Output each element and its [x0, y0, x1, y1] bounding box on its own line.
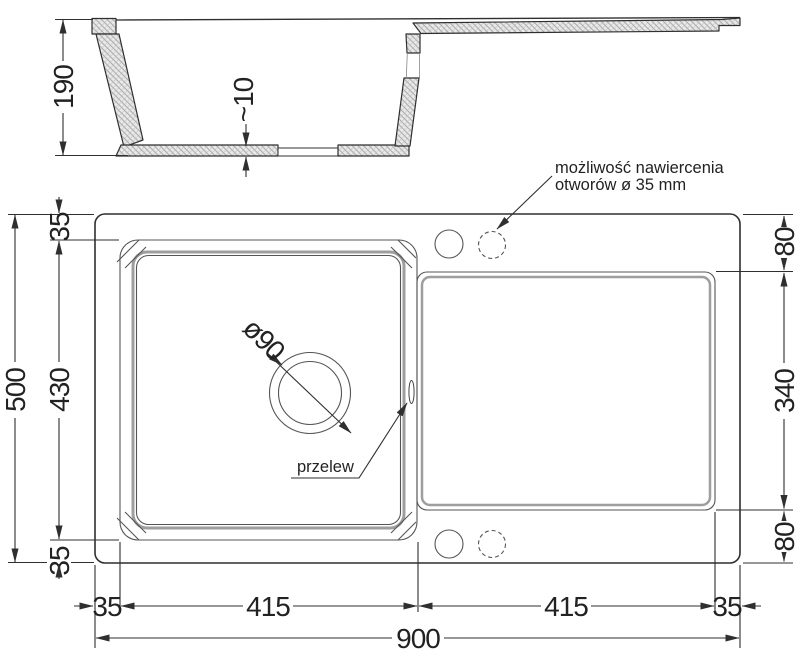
dim-drainer-offset-top-label: 80 [769, 227, 800, 257]
dim-right-margin-label: 35 [712, 591, 742, 622]
technical-drawing-page: 190 ~10 ø90 przelew [0, 0, 800, 654]
dim-depth-label: 190 [48, 65, 79, 109]
section-right-wall-upper [406, 34, 420, 53]
section-lip [92, 19, 116, 35]
drill-note-line1: możliwość nawiercenia [555, 159, 725, 177]
plan-view: ø90 przelew możliwość nawiercenia otworó… [95, 159, 740, 563]
section-left-wall [96, 34, 143, 147]
dim-left-margin-label: 35 [92, 591, 122, 622]
sink-technical-drawing: 190 ~10 ø90 przelew [0, 0, 800, 654]
dim-drainer-length-label: 340 [769, 369, 800, 413]
section-bottom-left [116, 145, 278, 156]
dim-bowl-height-label: 430 [44, 368, 75, 412]
overflow-channel-edge [406, 53, 407, 78]
overflow-label: przelew [297, 458, 354, 476]
drill-note-line2: otworów ø 35 mm [555, 176, 686, 194]
overflow-mark [409, 381, 414, 404]
section-bottom-right [338, 145, 409, 156]
section-drain-recess [278, 148, 338, 156]
dim-drainer-offset-bottom-label: 80 [769, 522, 800, 552]
dim-floor-thickness-label: ~10 [228, 77, 259, 122]
dim-total-width-label: 900 [396, 623, 440, 654]
dim-floor-thickness: ~10 [228, 77, 259, 177]
section-view: 190 ~10 [48, 18, 740, 178]
section-drainboard-deck [413, 18, 740, 34]
dim-total-height-label: 500 [0, 368, 31, 412]
dim-drainer-width-label: 415 [544, 591, 588, 622]
dim-top-margin-label: 35 [44, 212, 75, 242]
dim-bowl-width-label: 415 [246, 591, 290, 622]
section-right-wall-lower [395, 78, 419, 146]
section-top-edge-line [116, 18, 740, 21]
